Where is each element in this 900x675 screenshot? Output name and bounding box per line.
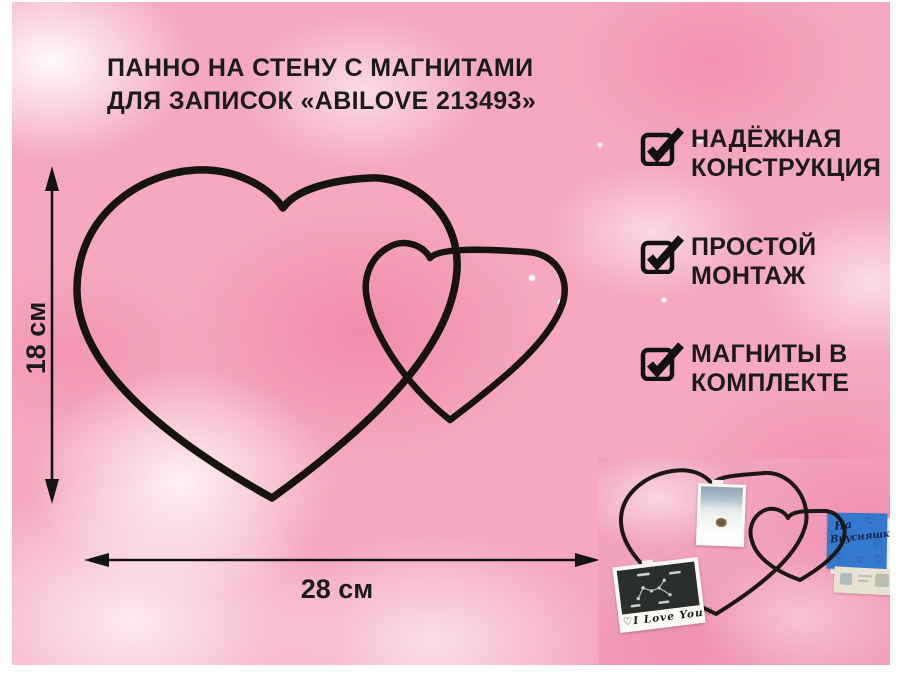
snow-photo [696,483,746,547]
product-card: ПАННО НА СТЕНУ С МАГНИТАМИ ДЛЯ ЗАПИСОК «… [0,0,900,675]
feature-text: МАГНИТЫ В КОМПЛЕКТЕ [691,340,849,398]
feature-line: КОНСТРУКЦИЯ [691,154,881,183]
love-photo-card: ♡I Love You♡ [612,557,705,633]
checkbox-checked-icon [640,126,684,166]
checkbox-checked-icon [640,341,684,381]
heart-doodle-icon: ♡ [703,605,715,618]
feature-text: ПРОСТОЙ МОНТАЖ [691,233,816,291]
checkbox-checked-icon [640,234,684,274]
dog-in-photo [716,518,727,527]
feature-easy-mounting: ПРОСТОЙ МОНТАЖ [640,233,816,291]
feature-line: МОНТАЖ [691,262,816,291]
feature-line: МАГНИТЫ В [691,340,849,369]
pink-marble-background: ПАННО НА СТЕНУ С МАГНИТАМИ ДЛЯ ЗАПИСОК «… [12,2,890,665]
big-heart-wire [77,170,457,498]
feature-line: НАДЁЖНАЯ [691,125,881,154]
feature-magnets-included: МАГНИТЫ В КОМПЛЕКТЕ [640,340,849,398]
feature-line: ПРОСТОЙ [691,233,816,262]
feature-text: НАДЁЖНАЯ КОНСТРУКЦИЯ [691,125,881,183]
feature-line: КОМПЛЕКТЕ [691,369,849,398]
feature-reliable-construction: НАДЁЖНАЯ КОНСТРУКЦИЯ [640,125,881,183]
height-dimension-label: 18 см [21,278,51,398]
constellation-image [617,561,700,614]
constellation-doodle [617,561,700,614]
usage-example-photo: На Вкусняшку ♡ ♡ ♡ ♡ ♡ ♡ [598,458,890,665]
width-dimension-label: 28 см [267,574,407,604]
snow-photo-image [699,486,743,533]
width-dimension-arrow [84,553,600,567]
